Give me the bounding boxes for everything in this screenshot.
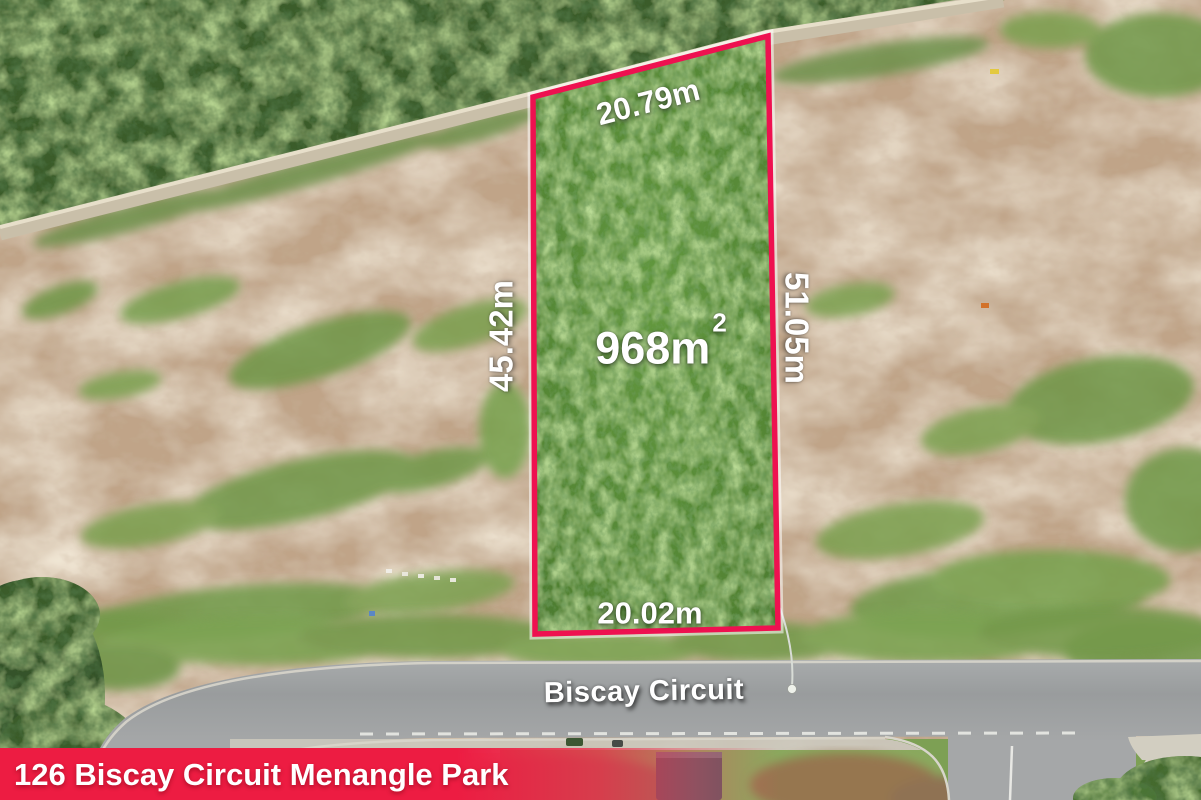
dimension-left-label: 45.42m — [485, 280, 518, 392]
dimension-right-label: 51.05m — [781, 272, 814, 384]
address-banner: 126 Biscay Circuit Menangle Park — [0, 748, 1201, 800]
lot-area-label: 968m2 — [595, 326, 725, 371]
street-name-label: Biscay Circuit — [544, 676, 745, 708]
lot-area-exponent: 2 — [712, 308, 726, 338]
dimension-bottom-label: 20.02m — [597, 598, 702, 629]
address-text: 126 Biscay Circuit Menangle Park — [0, 759, 509, 790]
lot-area-value: 968m — [595, 323, 710, 374]
listing-photo: 20.79m 45.42m 51.05m 20.02m 968m2 Biscay… — [0, 0, 1201, 800]
